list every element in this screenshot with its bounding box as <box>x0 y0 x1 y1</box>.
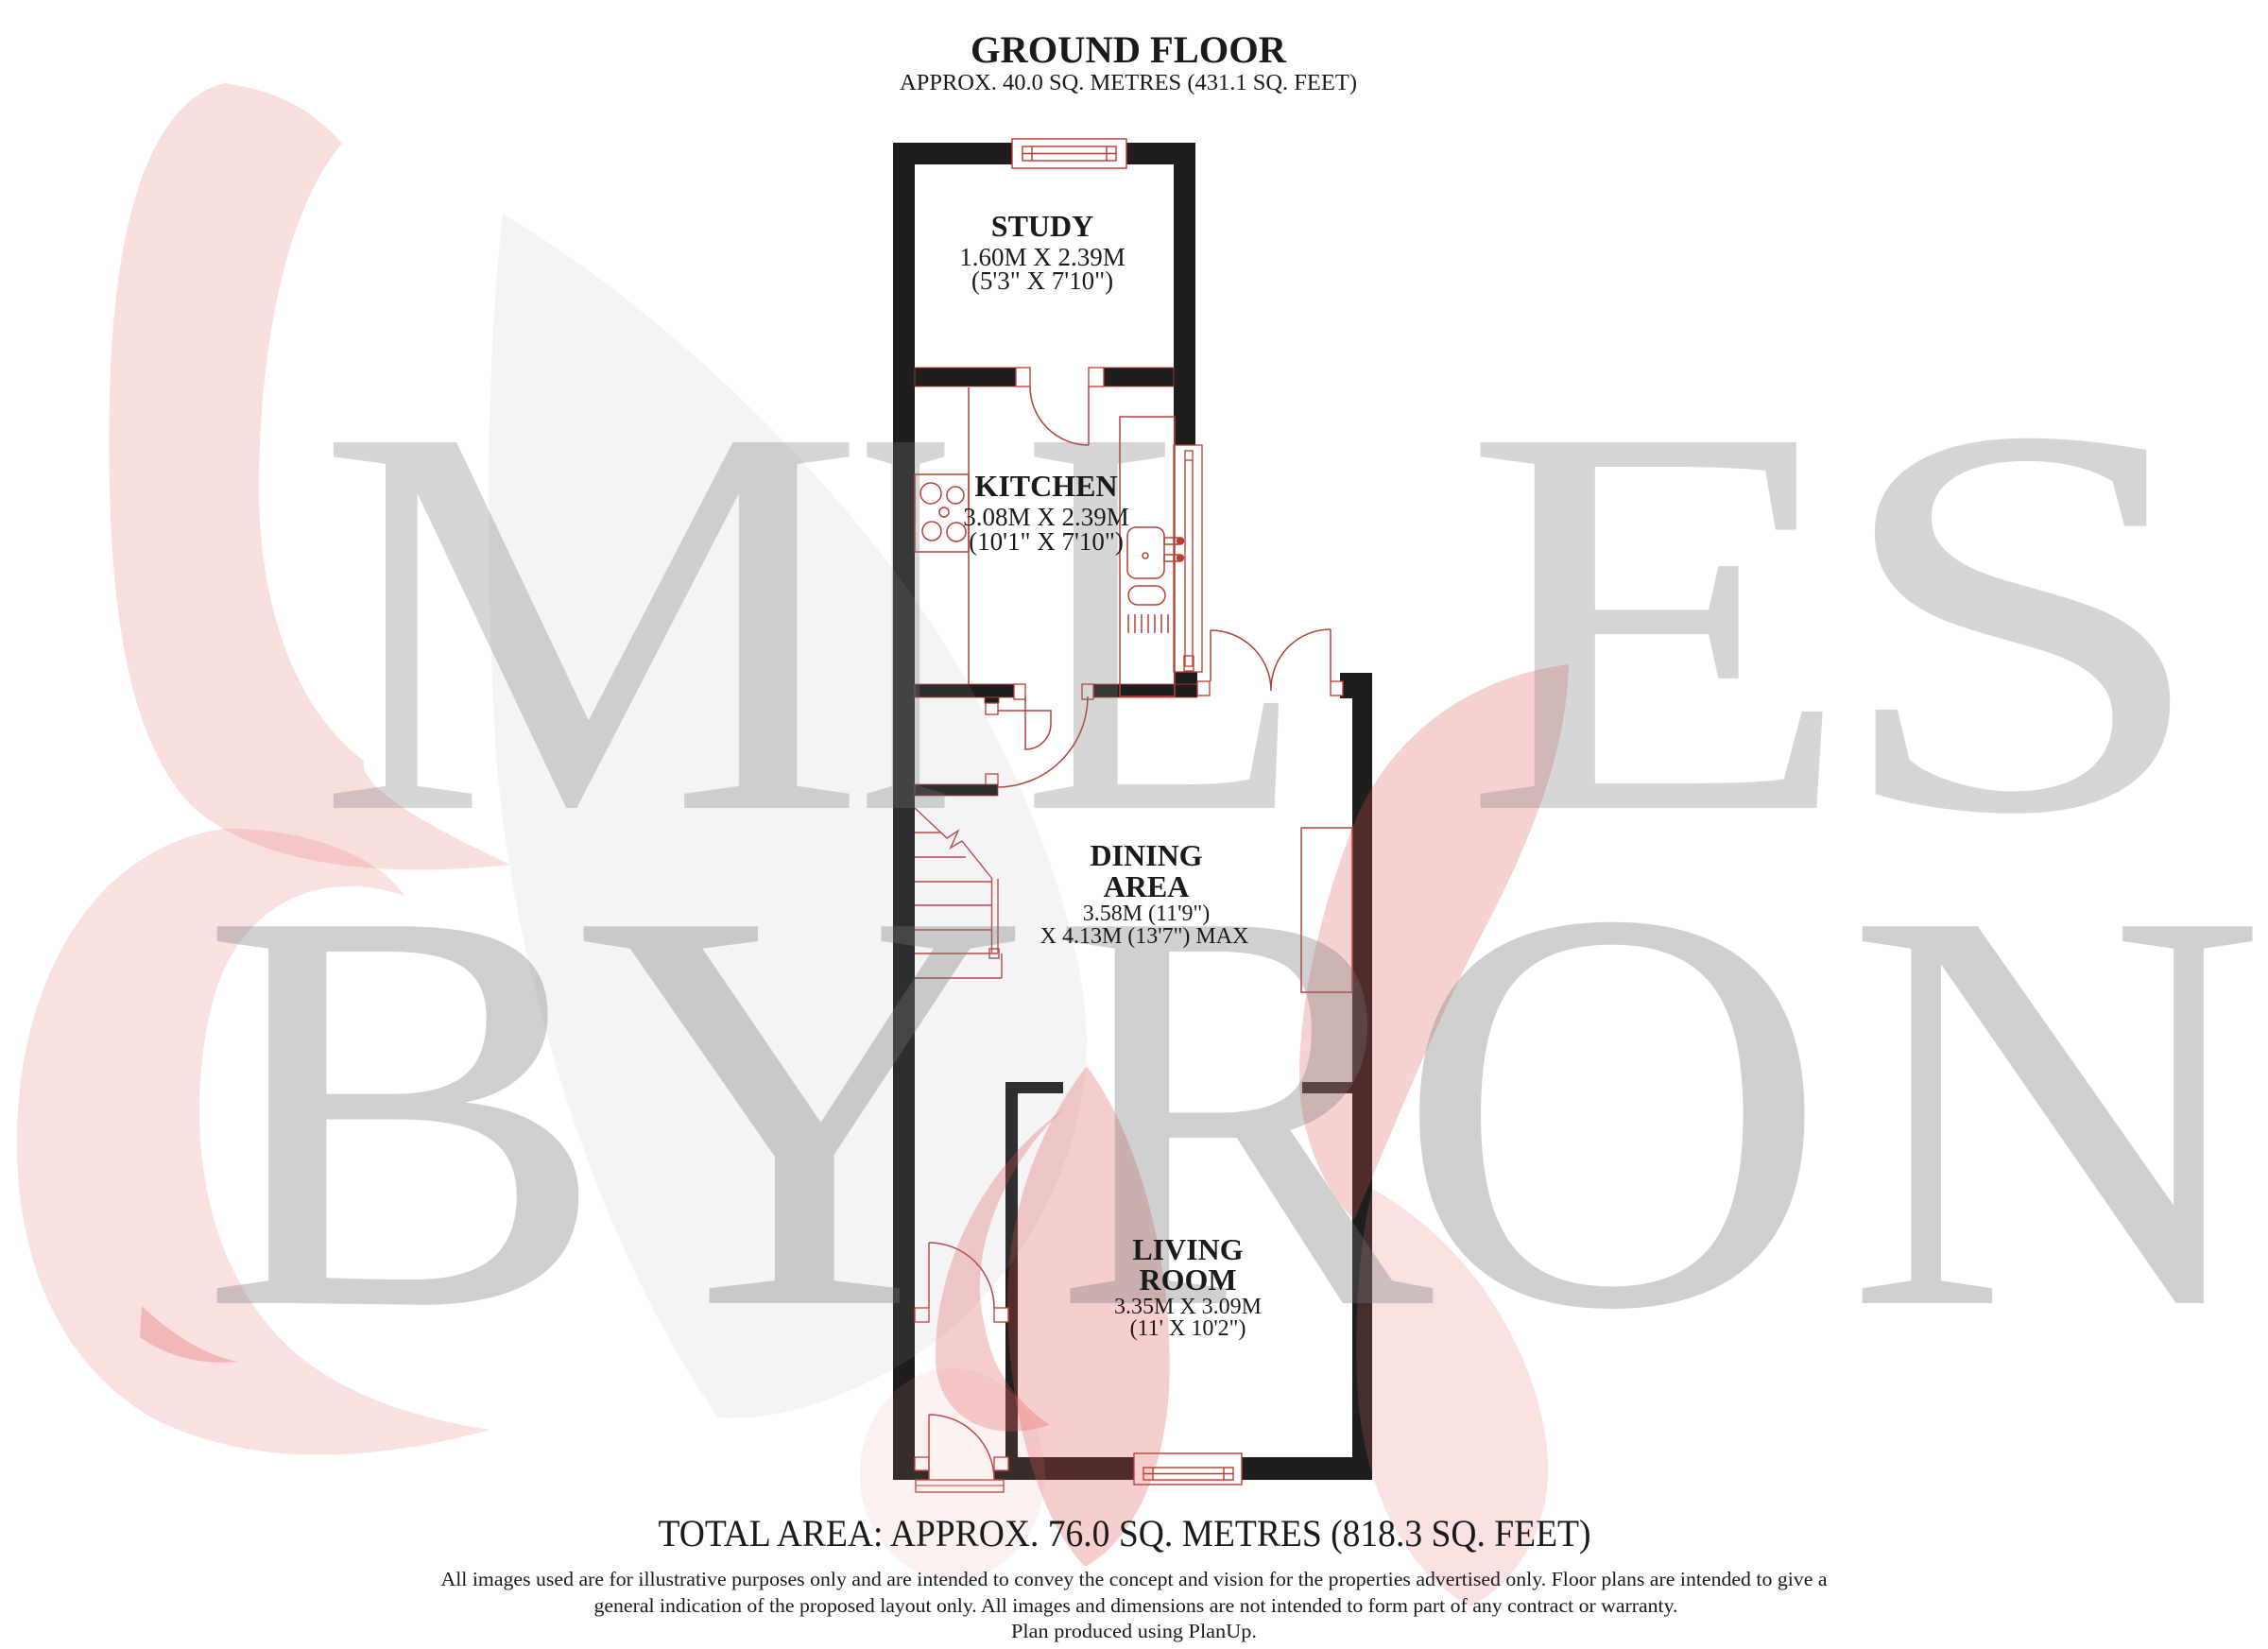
svg-text:(5'3" X 7'10"): (5'3" X 7'10") <box>971 266 1113 295</box>
svg-text:APPROX. 40.0 SQ. METRES (431.1: APPROX. 40.0 SQ. METRES (431.1 SQ. FEET) <box>900 71 1357 95</box>
svg-text:Y: Y <box>576 791 1031 1429</box>
svg-text:3.58M (11'9"): 3.58M (11'9") <box>1083 902 1211 926</box>
svg-text:STUDY: STUDY <box>991 209 1093 243</box>
svg-text:ROOM: ROOM <box>1139 1263 1236 1297</box>
svg-text:AREA: AREA <box>1104 869 1190 903</box>
svg-text:KITCHEN: KITCHEN <box>974 469 1117 503</box>
svg-text:O: O <box>1395 790 1830 1428</box>
svg-text:X 4.13M (13'7") MAX: X 4.13M (13'7") MAX <box>1040 924 1249 949</box>
svg-text:LIVING: LIVING <box>1132 1232 1243 1266</box>
svg-text:All images used are for illust: All images used are for illustrative pur… <box>441 1568 1828 1590</box>
svg-text:N: N <box>1846 791 2266 1428</box>
svg-text:Plan produced using PlanUp.: Plan produced using PlanUp. <box>1011 1620 1257 1642</box>
svg-text:(10'1" X 7'10"): (10'1" X 7'10") <box>969 527 1124 556</box>
svg-text:general indication of the prop: general indication of the proposed layou… <box>594 1594 1678 1617</box>
svg-text:DINING: DINING <box>1090 838 1202 872</box>
svg-text:B: B <box>199 791 609 1428</box>
svg-text:TOTAL AREA: APPROX. 76.0 SQ. M: TOTAL AREA: APPROX. 76.0 SQ. METRES (818… <box>659 1512 1591 1555</box>
svg-text:(11' X 10'2"): (11' X 10'2") <box>1130 1316 1246 1341</box>
svg-text:GROUND FLOOR: GROUND FLOOR <box>971 28 1287 71</box>
